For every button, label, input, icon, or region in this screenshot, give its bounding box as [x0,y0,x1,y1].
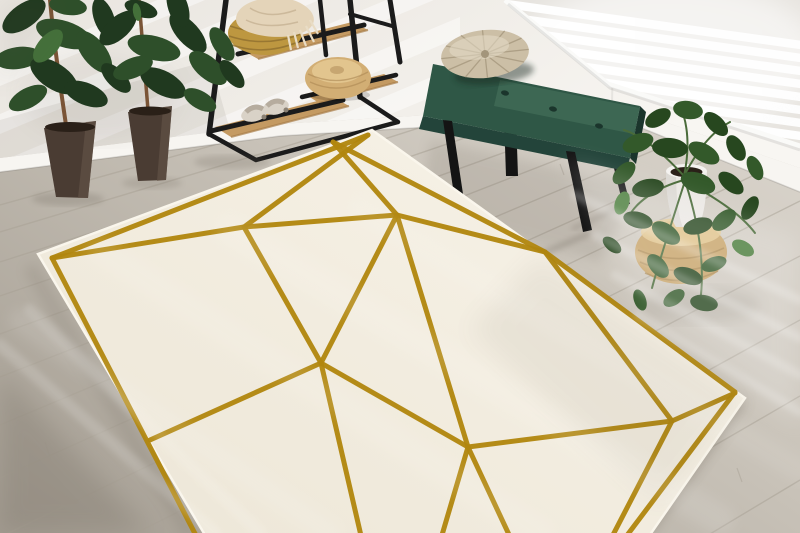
scene-canvas [0,0,800,533]
shelf-floor-shadow [194,155,270,169]
pouf-dimple [330,66,344,74]
woven-pouf-shelf [305,57,371,101]
pot-soil [129,107,171,116]
slipper-right-opening [284,108,289,113]
pot-soil [45,122,95,132]
living-room-photo [0,0,800,533]
blanket-body [236,0,314,37]
slipper-left-opening [262,115,267,120]
